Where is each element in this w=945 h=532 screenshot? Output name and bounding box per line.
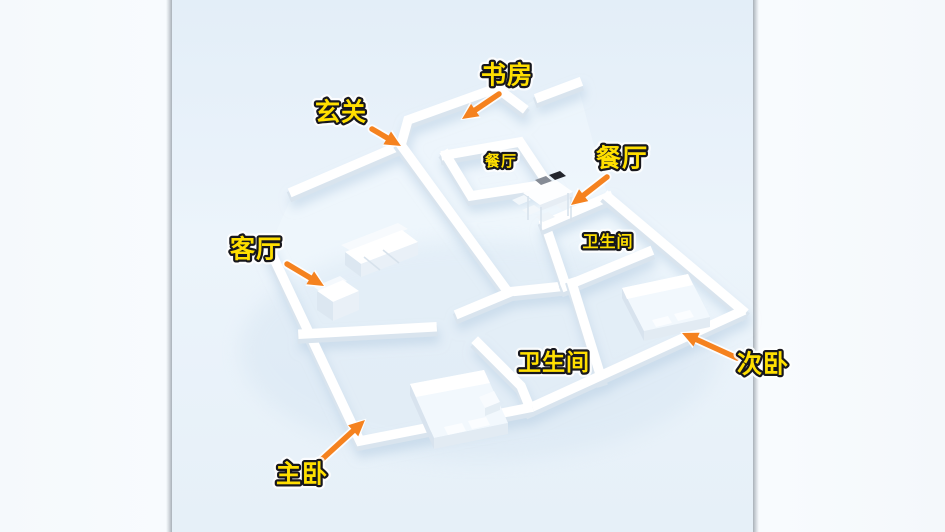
- floorplan-screenshot: 餐厅餐厅卫生间卫生间 书房书房玄关玄关餐厅餐厅客厅客厅卫生间卫生间次卧次卧主卧主…: [0, 0, 945, 532]
- svg-text:卫生间: 卫生间: [582, 232, 633, 251]
- svg-text:客厅: 客厅: [230, 235, 282, 264]
- svg-text:卫生间: 卫生间: [518, 349, 590, 375]
- floor-label-dining-floor: 餐厅餐厅: [485, 152, 517, 170]
- wall-11: [303, 327, 432, 338]
- svg-text:主卧: 主卧: [276, 461, 328, 489]
- annotation-bathroom: 卫生间卫生间: [518, 349, 590, 375]
- svg-text:餐厅: 餐厅: [485, 152, 517, 170]
- photo-left-edge-shadow: [166, 0, 172, 532]
- floor-label-bathroom-floor: 卫生间卫生间: [582, 232, 633, 251]
- photo-right-edge-shadow: [753, 0, 759, 532]
- svg-text:玄关: 玄关: [315, 98, 367, 127]
- svg-text:餐厅: 餐厅: [596, 145, 648, 173]
- floorplan-canvas: 餐厅餐厅卫生间卫生间 书房书房玄关玄关餐厅餐厅客厅客厅卫生间卫生间次卧次卧主卧主…: [0, 0, 945, 532]
- svg-text:书房: 书房: [481, 61, 533, 90]
- svg-text:次卧: 次卧: [737, 351, 789, 379]
